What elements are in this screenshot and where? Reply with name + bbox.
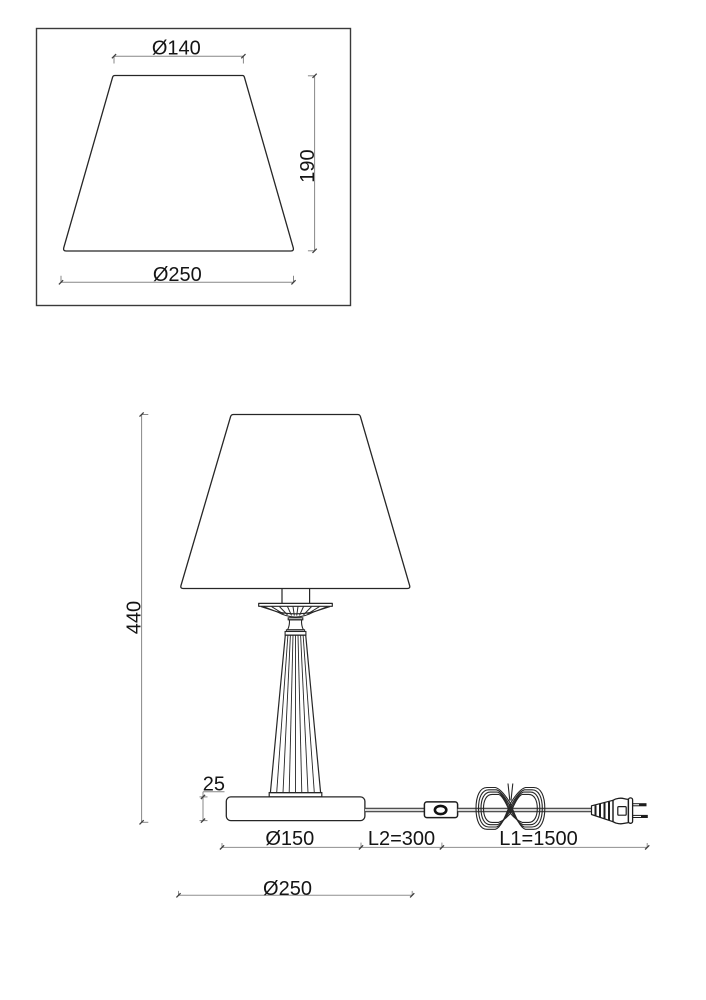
svg-text:Ø140: Ø140	[152, 37, 201, 59]
svg-text:25: 25	[203, 774, 225, 796]
svg-text:Ø250: Ø250	[263, 878, 312, 900]
svg-text:L1=1500: L1=1500	[499, 828, 577, 850]
svg-text:Ø150: Ø150	[265, 828, 314, 850]
svg-text:Ø250: Ø250	[153, 264, 202, 286]
svg-text:L2=300: L2=300	[368, 828, 435, 850]
svg-text:440: 440	[124, 601, 146, 634]
svg-text:190: 190	[297, 149, 319, 182]
